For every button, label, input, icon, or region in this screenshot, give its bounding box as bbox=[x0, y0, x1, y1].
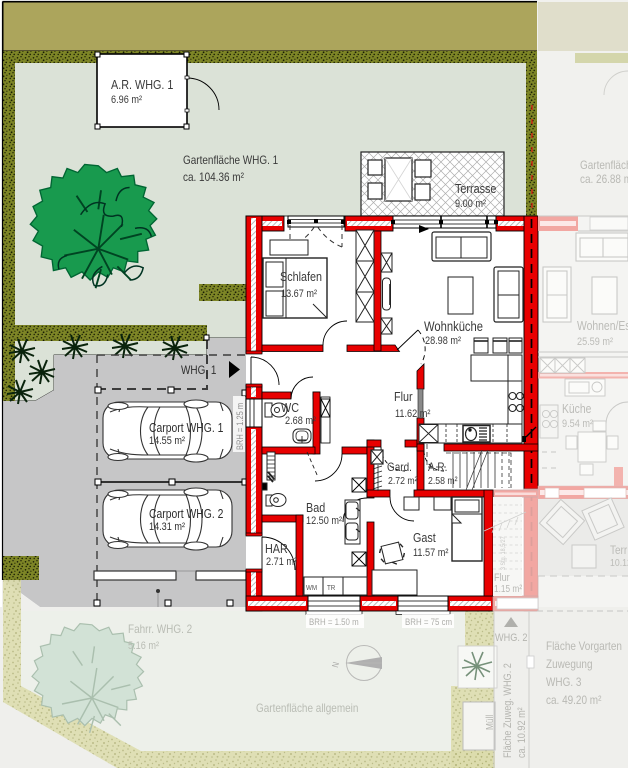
svg-text:Flur: Flur bbox=[494, 572, 510, 584]
svg-text:Gartenfläche allgemein: Gartenfläche allgemein bbox=[256, 701, 358, 715]
svg-text:12.50 m²: 12.50 m² bbox=[306, 515, 342, 527]
svg-text:ca. 104.36 m²: ca. 104.36 m² bbox=[183, 170, 244, 184]
svg-text:ca. 49.20 m²: ca. 49.20 m² bbox=[546, 693, 601, 707]
svg-text:Gartenfläche WHG. 1: Gartenfläche WHG. 1 bbox=[183, 153, 278, 167]
svg-text:Fahrr. WHG. 2: Fahrr. WHG. 2 bbox=[128, 622, 192, 636]
svg-text:Flur: Flur bbox=[394, 389, 413, 404]
svg-text:11.57 m²: 11.57 m² bbox=[413, 547, 449, 559]
svg-text:5.16 m²: 5.16 m² bbox=[128, 640, 159, 652]
svg-text:2.68 m²: 2.68 m² bbox=[285, 415, 316, 427]
svg-text:Wohnen/Es: Wohnen/Es bbox=[577, 319, 628, 333]
svg-text:9.00 m²: 9.00 m² bbox=[455, 198, 486, 210]
svg-text:Terrasse: Terrasse bbox=[455, 181, 496, 196]
svg-text:BRH = 1.50 m: BRH = 1.50 m bbox=[309, 617, 359, 628]
svg-text:TR: TR bbox=[327, 583, 336, 592]
svg-text:Gast: Gast bbox=[413, 530, 436, 545]
svg-text:11.62 m²: 11.62 m² bbox=[395, 408, 431, 420]
svg-text:28.98 m²: 28.98 m² bbox=[425, 335, 461, 347]
svg-text:WHG. 2: WHG. 2 bbox=[495, 632, 528, 644]
svg-text:2.72 m²: 2.72 m² bbox=[388, 475, 418, 487]
svg-text:WHG. 1: WHG. 1 bbox=[181, 363, 217, 377]
svg-text:A.R. WHG. 1: A.R. WHG. 1 bbox=[111, 77, 173, 92]
svg-text:Terr: Terr bbox=[610, 543, 627, 557]
svg-text:Carport WHG. 1: Carport WHG. 1 bbox=[149, 421, 223, 435]
svg-text:2.58 m²: 2.58 m² bbox=[428, 475, 458, 487]
svg-text:Fläche Zuweg. WHG. 2: Fläche Zuweg. WHG. 2 bbox=[502, 663, 514, 758]
svg-text:2.71 m²: 2.71 m² bbox=[266, 556, 297, 568]
svg-text:Küche: Küche bbox=[562, 402, 591, 416]
svg-text:WM: WM bbox=[306, 583, 317, 592]
svg-text:Fläche Vorgarten: Fläche Vorgarten bbox=[546, 639, 622, 653]
svg-text:25.59 m²: 25.59 m² bbox=[577, 336, 613, 348]
svg-text:Schlafen: Schlafen bbox=[280, 269, 322, 284]
svg-text:Carport WHG. 2: Carport WHG. 2 bbox=[149, 507, 223, 521]
svg-text:ca. 10.92 m²: ca. 10.92 m² bbox=[516, 707, 528, 758]
svg-text:6.96 m²: 6.96 m² bbox=[111, 94, 142, 106]
svg-text:Zuwegung: Zuwegung bbox=[546, 657, 593, 671]
svg-text:13.67 m²: 13.67 m² bbox=[281, 288, 317, 300]
svg-text:BRH = 1.25 m: BRH = 1.25 m bbox=[235, 403, 245, 450]
svg-text:Wohnküche: Wohnküche bbox=[424, 319, 483, 334]
svg-text:14.31 m²: 14.31 m² bbox=[149, 521, 185, 533]
svg-text:BRH = 75 cm: BRH = 75 cm bbox=[405, 617, 452, 628]
svg-text:HAR: HAR bbox=[265, 541, 288, 556]
svg-text:1.15 m²: 1.15 m² bbox=[494, 584, 523, 595]
svg-text:9.54 m²: 9.54 m² bbox=[562, 418, 593, 430]
svg-text:WHG. 3: WHG. 3 bbox=[546, 675, 582, 689]
svg-text:14.55 m²: 14.55 m² bbox=[149, 435, 185, 447]
svg-text:Bad: Bad bbox=[306, 500, 325, 515]
svg-text:3 Stg. 18,5/27: 3 Stg. 18,5/27 bbox=[500, 536, 507, 570]
svg-text:A.R.: A.R. bbox=[428, 460, 447, 474]
svg-text:WC: WC bbox=[281, 400, 299, 415]
svg-text:Gartenfläch: Gartenfläch bbox=[580, 158, 628, 172]
svg-text:Gard.: Gard. bbox=[387, 460, 412, 474]
svg-text:ca. 26.88 m: ca. 26.88 m bbox=[580, 172, 628, 186]
svg-text:10.12: 10.12 bbox=[610, 557, 628, 569]
